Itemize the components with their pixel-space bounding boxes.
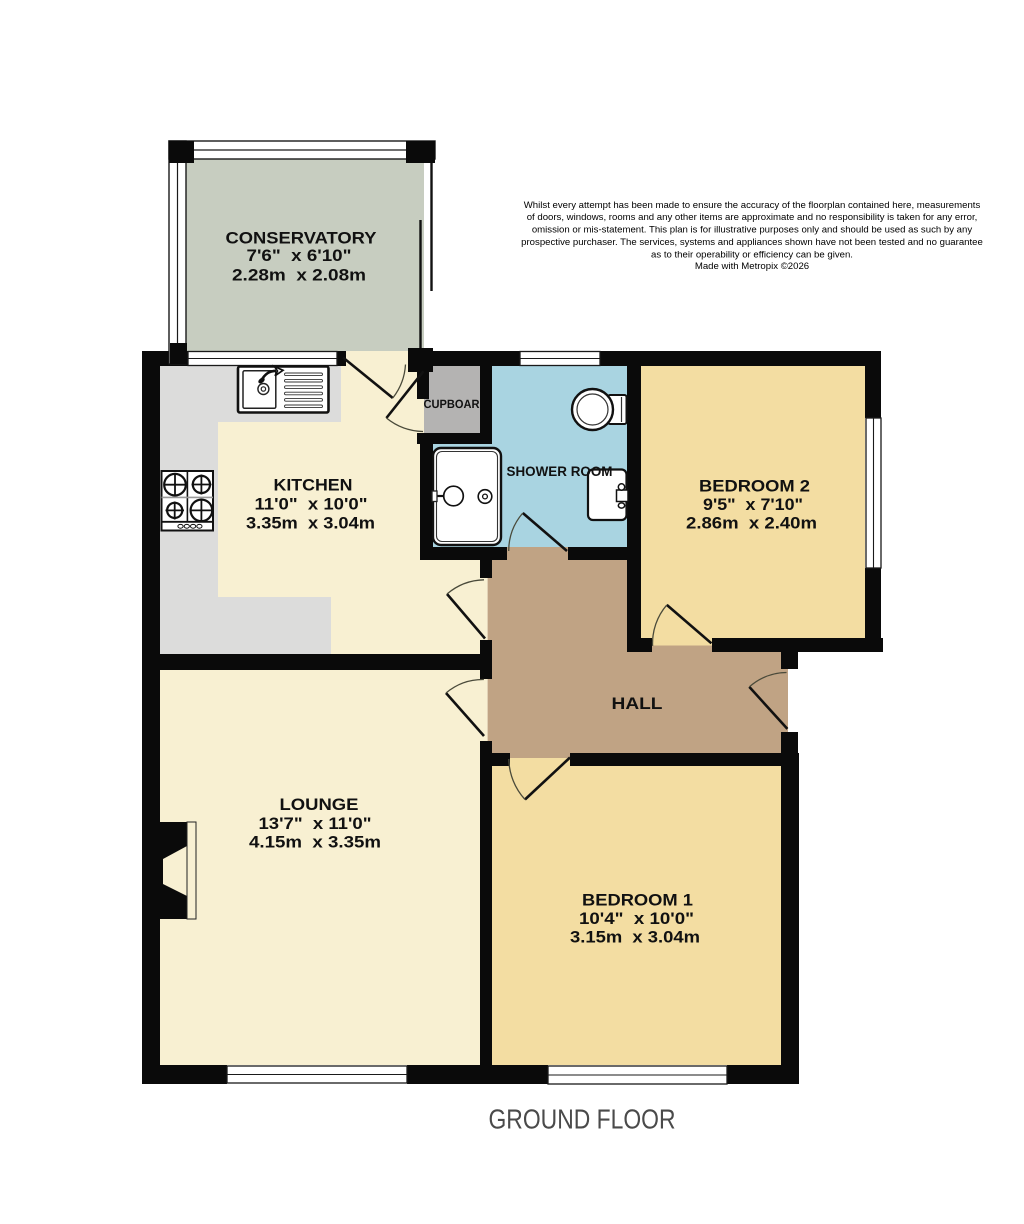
svg-text:LOUNGE: LOUNGE — [280, 795, 359, 814]
svg-text:prospective purchaser. The ser: prospective purchaser. The services, sys… — [521, 237, 983, 248]
svg-text:Made with Metropix ©2026: Made with Metropix ©2026 — [695, 261, 809, 272]
svg-text:3.15m x 3.04m: 3.15m x 3.04m — [570, 928, 700, 947]
svg-text:SHOWER ROOM: SHOWER ROOM — [507, 463, 613, 479]
svg-text:3.35m x 3.04m: 3.35m x 3.04m — [246, 513, 375, 532]
svg-text:BEDROOM 1: BEDROOM 1 — [582, 891, 693, 910]
svg-text:Whilst every attempt has been: Whilst every attempt has been made to en… — [524, 200, 981, 211]
svg-text:omission or mis-statement. Thi: omission or mis-statement. This plan is … — [532, 225, 972, 236]
svg-text:GROUND FLOOR: GROUND FLOOR — [489, 1104, 676, 1135]
svg-text:BEDROOM 2: BEDROOM 2 — [699, 477, 810, 496]
svg-text:of doors, windows, rooms and a: of doors, windows, rooms and any other i… — [527, 212, 978, 223]
svg-text:KITCHEN: KITCHEN — [274, 476, 353, 495]
svg-text:as to their operability or eff: as to their operability or efficiency ca… — [651, 249, 853, 260]
svg-text:11'0" x 10'0": 11'0" x 10'0" — [255, 495, 368, 514]
svg-text:10'4" x 10'0": 10'4" x 10'0" — [579, 909, 694, 928]
svg-text:9'5" x 7'10": 9'5" x 7'10" — [703, 495, 803, 514]
svg-text:HALL: HALL — [612, 694, 663, 713]
svg-text:2.28m x 2.08m: 2.28m x 2.08m — [232, 265, 366, 284]
svg-text:4.15m x 3.35m: 4.15m x 3.35m — [249, 833, 381, 852]
svg-text:CUPBOARD: CUPBOARD — [424, 397, 488, 411]
svg-text:CONSERVATORY: CONSERVATORY — [226, 229, 378, 248]
svg-text:2.86m x 2.40m: 2.86m x 2.40m — [686, 514, 817, 533]
svg-text:13'7" x 11'0": 13'7" x 11'0" — [259, 814, 372, 833]
svg-text:7'6" x 6'10": 7'6" x 6'10" — [247, 246, 352, 265]
